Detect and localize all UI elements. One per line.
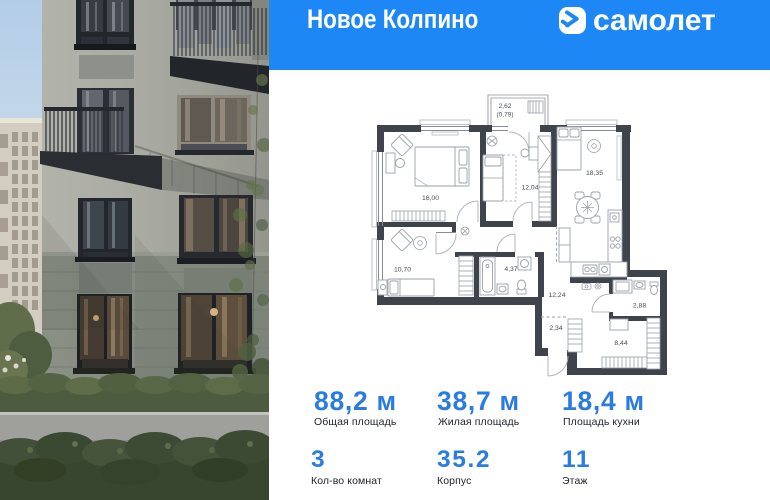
svg-text:2,88: 2,88 [633,303,646,310]
svg-text:12,24: 12,24 [548,292,565,299]
svg-text:12,04: 12,04 [521,185,538,192]
svg-text:8,44: 8,44 [614,340,627,347]
svg-text:2,62: 2,62 [499,103,512,110]
svg-text:16,00: 16,00 [422,195,439,202]
svg-text:10,70: 10,70 [394,267,411,274]
svg-text:18,35: 18,35 [586,170,603,177]
svg-text:4,37: 4,37 [504,266,517,273]
svg-text:(0,79): (0,79) [497,112,514,119]
svg-text:2,34: 2,34 [549,325,562,332]
